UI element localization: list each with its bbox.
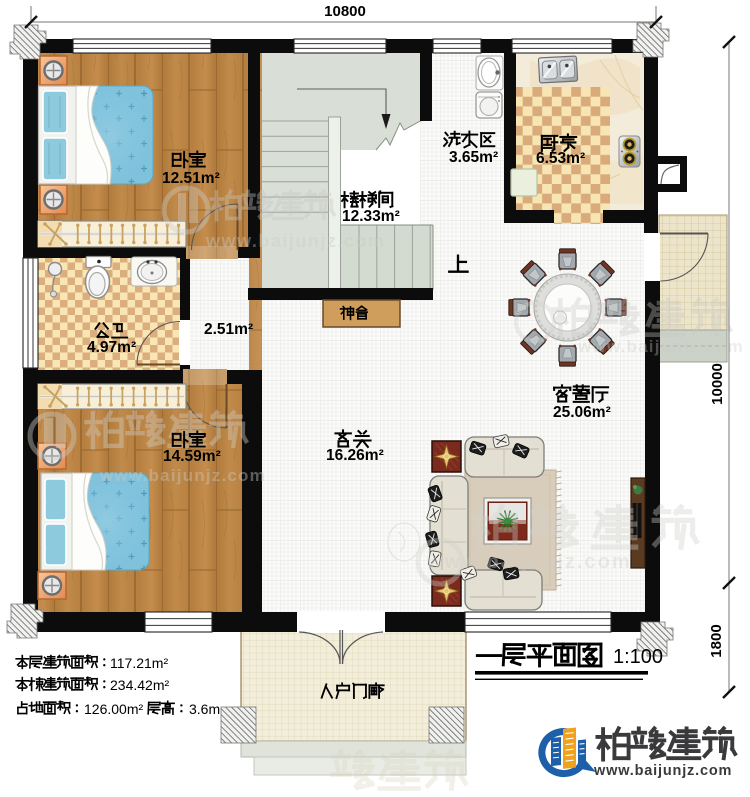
svg-text:12.33m²: 12.33m² [342, 208, 400, 225]
svg-text:14.59m²: 14.59m² [163, 448, 221, 465]
svg-text:234.42m²: 234.42m² [110, 677, 169, 693]
svg-text:126.00m²: 126.00m² [84, 701, 143, 717]
svg-text:www.baijunjz.com: www.baijunjz.com [577, 337, 744, 356]
svg-text:www.baijunjz.com: www.baijunjz.com [426, 551, 632, 573]
svg-text:12.51m²: 12.51m² [162, 170, 220, 187]
svg-text:4.97m²: 4.97m² [87, 339, 136, 356]
svg-text:www.baijunjz.com: www.baijunjz.com [99, 466, 266, 485]
svg-text:6.53m²: 6.53m² [536, 150, 585, 167]
svg-text:10800: 10800 [324, 3, 366, 20]
svg-text:www.baijunjz.com: www.baijunjz.com [205, 231, 385, 251]
svg-text:10000: 10000 [709, 363, 726, 405]
svg-text:25.06m²: 25.06m² [553, 404, 611, 421]
svg-text:1800: 1800 [708, 624, 725, 657]
svg-text:16.26m²: 16.26m² [326, 447, 384, 464]
svg-text:2.51m²: 2.51m² [204, 321, 253, 338]
svg-text:3.6m: 3.6m [189, 701, 220, 717]
svg-text:1:100: 1:100 [613, 646, 663, 668]
svg-text:www.baijunjz.com: www.baijunjz.com [593, 763, 733, 779]
svg-text:3.65m²: 3.65m² [449, 149, 498, 166]
svg-text:117.21m²: 117.21m² [110, 655, 168, 671]
